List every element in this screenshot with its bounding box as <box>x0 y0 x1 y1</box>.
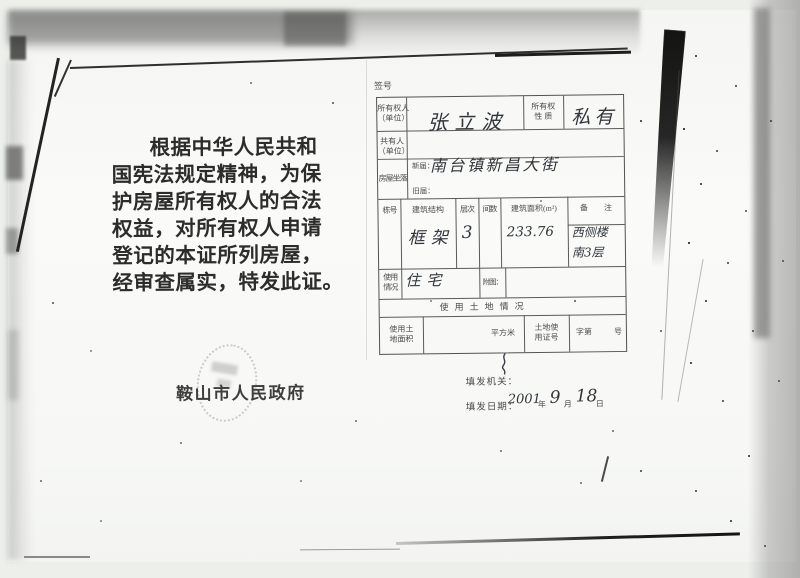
land-area-label-line1: 使用土 <box>380 324 423 334</box>
scan-speckles <box>0 0 2 2</box>
header-building-no: 栋号 <box>378 206 400 216</box>
issuing-government-name: 鞍山市人民政府 <box>176 378 306 404</box>
statement-line: 护房屋所有权人的合法 <box>112 188 346 217</box>
co-owner-label-line1: 共有人 <box>378 137 407 147</box>
header-area: 建筑面积(m²) <box>500 204 567 214</box>
header-floors: 层次 <box>455 205 478 215</box>
statement-line: 经审查属实，特发此证。 <box>112 269 346 298</box>
remark-line1: 西侧楼 <box>572 223 608 240</box>
land-cert-label: 土地使 用证号 <box>524 323 569 343</box>
year-char: 年 <box>538 399 547 410</box>
table-divider <box>380 296 626 300</box>
usage-value: 住宅 <box>405 269 447 291</box>
floors-value: 3 <box>462 223 473 243</box>
area-value: 233.76 <box>507 224 554 241</box>
issue-day-value: 18 <box>576 386 598 406</box>
issuing-org-label: 填发机关： <box>465 373 518 388</box>
remark-line2: 南3层 <box>572 243 604 260</box>
land-area-label-line2: 地面积 <box>380 334 423 344</box>
attached-drawing-label: 附图： <box>479 277 505 287</box>
usage-label: 使用 情况 <box>379 273 401 292</box>
month-char: 月 <box>564 399 573 410</box>
serial-number-label: 签号 <box>374 79 392 92</box>
statement-line: 根据中华人民共和 <box>111 134 345 163</box>
structure-value: 框架 <box>408 223 454 249</box>
owner-label-line2: （单位） <box>377 113 406 123</box>
land-unit-label: 平方米 <box>482 328 524 338</box>
form-table: 所有权人 （单位） 张立波 所有权 性 质 私有 共有人 （单位） 房屋坐落 新… <box>376 94 627 355</box>
land-cert-label-line1: 土地使 <box>524 323 569 333</box>
land-no-suffix: 号 <box>614 327 622 337</box>
header-structure: 建筑结构 <box>400 205 455 215</box>
usage-label-line2: 情况 <box>379 282 401 292</box>
statement-line: 权益，对所有权人申请 <box>112 215 346 244</box>
table-divider <box>380 314 626 318</box>
property-form: 签号 所有权人 <box>374 89 634 422</box>
day-char: 日 <box>596 398 605 409</box>
owner-label-line1: 所有权人 <box>377 104 406 114</box>
co-owner-label: 共有人 （单位） <box>378 137 407 156</box>
usage-label-line1: 使用 <box>379 273 401 283</box>
nature-label-line1: 所有权 <box>523 102 563 112</box>
ownership-nature-value: 私有 <box>571 102 617 130</box>
location-new-value: 南台镇新昌大街 <box>430 151 560 177</box>
location-label: 房屋坐落 <box>378 174 407 184</box>
ownership-nature-label: 所有权 性 质 <box>523 102 563 121</box>
scanned-certificate-page: 根据中华人民共和 国宪法规定精神，为保 护房屋所有权人的合法 权益，对所有权人申… <box>0 0 800 578</box>
land-section-title: 使用土地情况 <box>440 302 530 313</box>
statement-line: 登记的本证所列房屋， <box>112 242 346 271</box>
land-no-prefix: 字第 <box>576 327 592 337</box>
issue-year-value: 2001 <box>508 392 541 407</box>
land-cert-label-line2: 用证号 <box>524 332 569 342</box>
header-remark: 备 注 <box>567 203 624 213</box>
statement-line: 国宪法规定精神，为保 <box>112 161 346 190</box>
co-owner-label-line2: （单位） <box>378 146 407 156</box>
header-rooms: 间数 <box>478 204 500 214</box>
owner-name-value: 张立波 <box>427 105 508 135</box>
location-old-label: 旧届： <box>412 186 435 196</box>
table-divider <box>401 269 402 299</box>
issue-month-value: 9 <box>550 388 561 408</box>
owner-label: 所有权人 （单位） <box>377 104 406 123</box>
nature-label-line2: 性 质 <box>523 111 563 121</box>
certificate-statement: 根据中华人民共和 国宪法规定精神，为保 护房屋所有权人的合法 权益，对所有权人申… <box>111 134 346 298</box>
seal-mark <box>211 361 238 375</box>
land-area-label: 使用土 地面积 <box>380 324 423 344</box>
